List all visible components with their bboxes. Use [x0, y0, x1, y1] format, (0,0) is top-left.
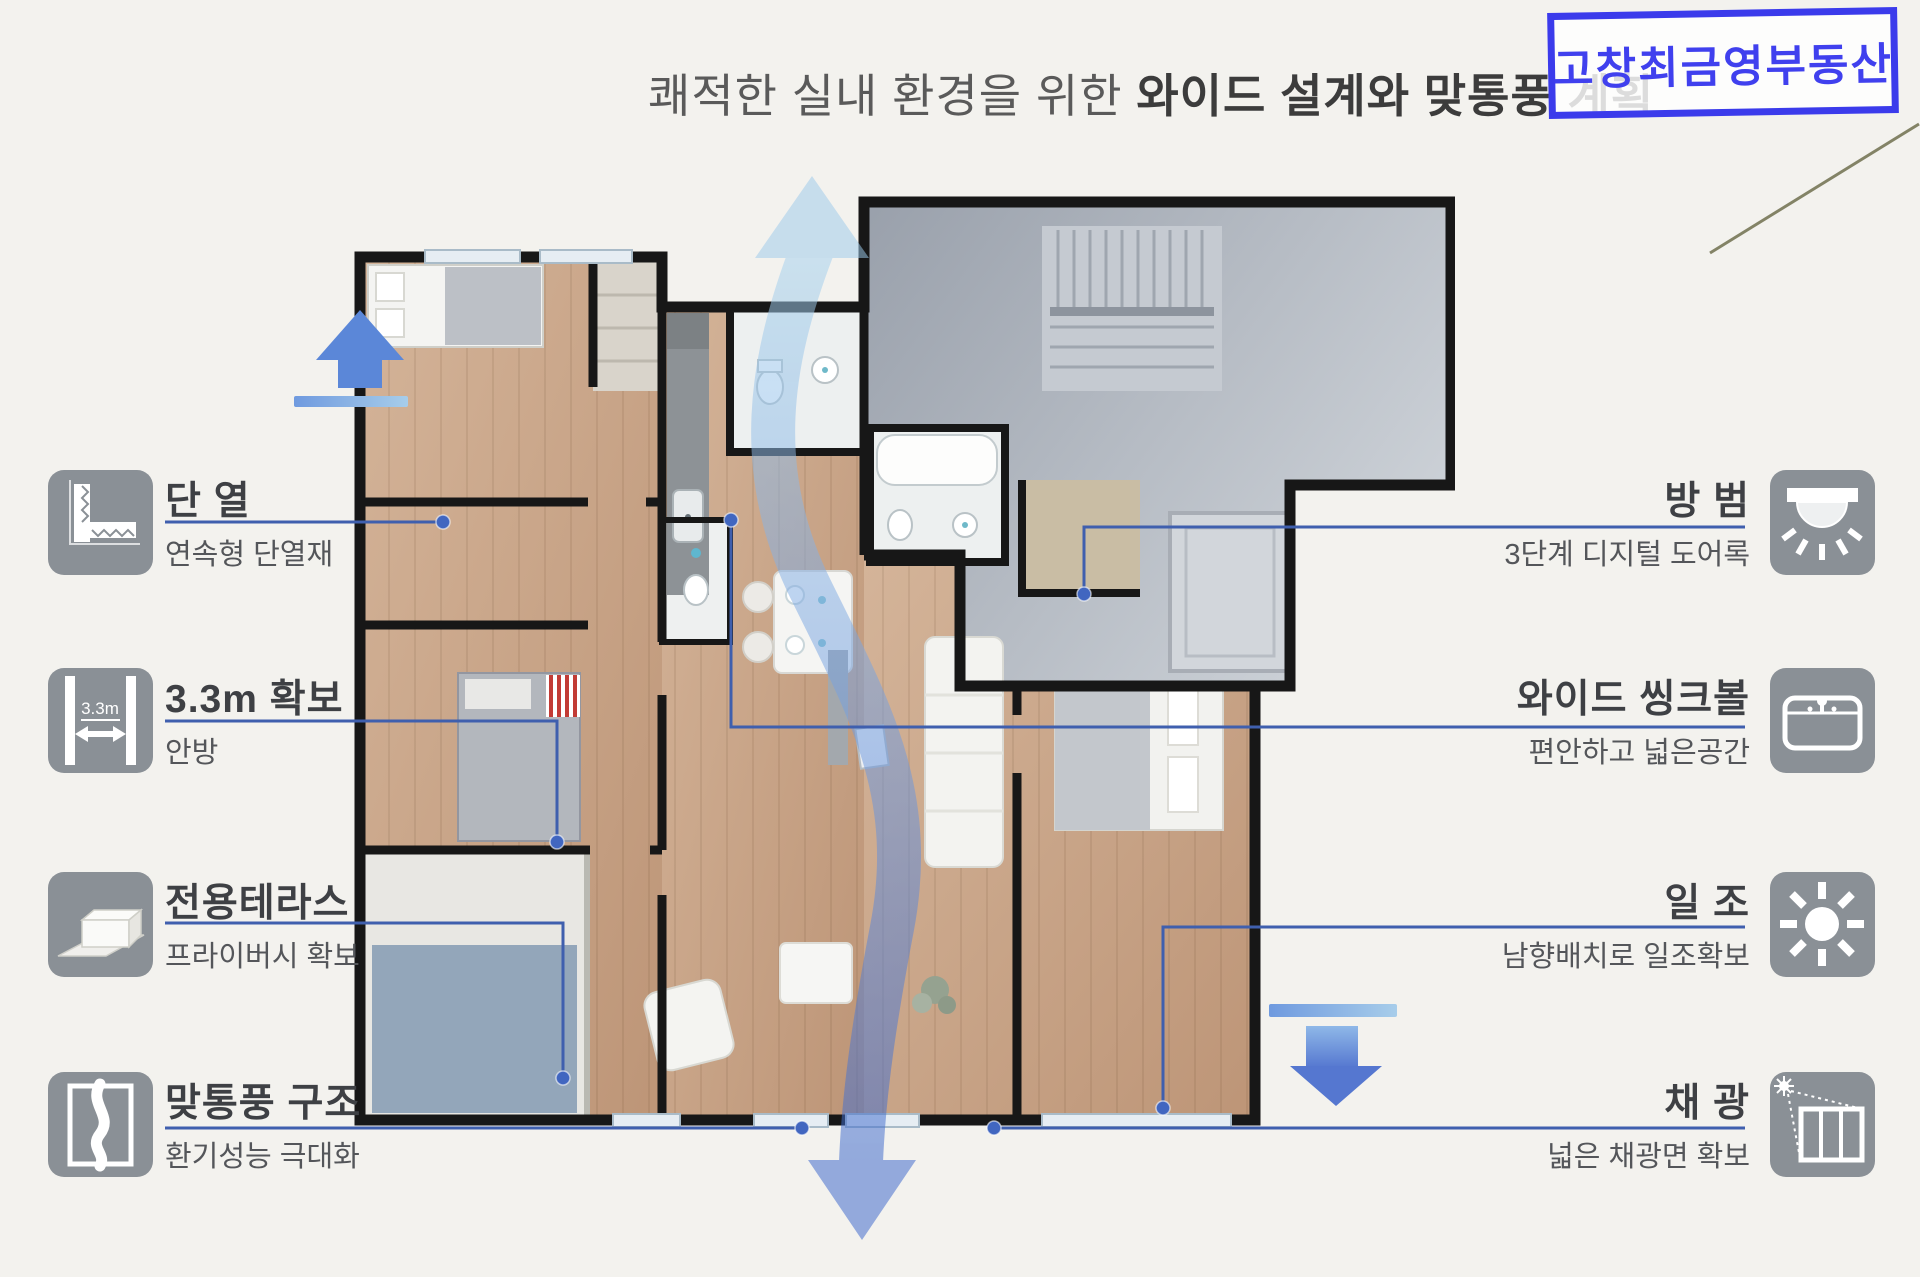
entry-vestibule — [1022, 480, 1140, 593]
feature-title: 단 열 — [165, 470, 333, 529]
page-title: 쾌적한 실내 환경을 위한 와이드 설계와 맞통풍 계획 — [648, 60, 1654, 126]
feature-insulation: 단 열 연속형 단열재 — [48, 470, 333, 575]
coffee-table — [780, 943, 852, 1003]
bathroom-1-floor — [730, 307, 864, 452]
security-lamp-icon — [1770, 470, 1875, 575]
feature-title: 일 조 — [1320, 872, 1750, 931]
insulation-icon — [48, 470, 153, 575]
feature-subtitle: 3단계 디지털 도어록 — [1320, 531, 1750, 573]
realtor-stamp: 고창최금영부동산 — [1547, 7, 1899, 119]
terrace-deck — [372, 945, 577, 1113]
feature-daylight: 채 광 넓은 채광면 확보 — [1320, 1072, 1875, 1177]
flyer-page: { "title": { "regular": "쾌적한 실내 환경을 위한 "… — [0, 0, 1920, 1277]
feature-subtitle: 남향배치로 일조확보 — [1320, 933, 1750, 975]
width-icon-label: 3.3m — [81, 699, 119, 718]
page-title-regular: 쾌적한 실내 환경을 위한 — [648, 70, 1136, 122]
realtor-stamp-text: 고창최금영부동산 — [1553, 28, 1894, 98]
feature-subtitle: 편안하고 넓은공간 — [1320, 729, 1750, 771]
feature-security: 방 범 3단계 디지털 도어록 — [1320, 470, 1875, 575]
feature-width: 3.3m 3.3m 확보 안방 — [48, 668, 344, 773]
kitchen-counter — [667, 313, 709, 595]
feature-terrace: 전용테라스 프라이버시 확보 — [48, 872, 360, 977]
closet — [593, 261, 658, 391]
airflow-arrowhead-bottom — [808, 1160, 916, 1240]
bed-bottomright — [1055, 682, 1223, 830]
sun-icon — [1770, 872, 1875, 977]
airflow-icon — [48, 1072, 153, 1177]
scan-scratch-line — [1710, 124, 1919, 253]
feature-title: 방 범 — [1320, 470, 1750, 529]
elevator — [1170, 513, 1290, 671]
feature-subtitle: 연속형 단열재 — [165, 531, 333, 573]
feature-title: 채 광 — [1320, 1072, 1750, 1131]
feature-sunlight: 일 조 남향배치로 일조확보 — [1320, 872, 1875, 977]
bed-topleft — [368, 265, 543, 347]
sink-icon — [1770, 668, 1875, 773]
feature-subtitle: 프라이버시 확보 — [165, 933, 360, 975]
master-bed — [458, 673, 580, 841]
feature-subtitle: 넓은 채광면 확보 — [1320, 1133, 1750, 1175]
stairs — [1042, 226, 1222, 391]
terrace-icon — [48, 872, 153, 977]
feature-title: 3.3m 확보 — [165, 668, 344, 727]
daylight-window-icon — [1770, 1072, 1875, 1177]
feature-crossvent: 맞통풍 구조 환기성능 극대화 — [48, 1072, 361, 1177]
feature-subtitle: 환기성능 극대화 — [165, 1133, 361, 1175]
width-3-3m-icon: 3.3m — [48, 668, 153, 773]
feature-title: 전용테라스 — [165, 872, 360, 931]
feature-sink: 와이드 씽크볼 편안하고 넓은공간 — [1320, 668, 1875, 773]
feature-title: 와이드 씽크볼 — [1320, 668, 1750, 727]
feature-subtitle: 안방 — [165, 729, 344, 771]
feature-title: 맞통풍 구조 — [165, 1072, 361, 1131]
floor-plan — [350, 195, 1455, 1140]
